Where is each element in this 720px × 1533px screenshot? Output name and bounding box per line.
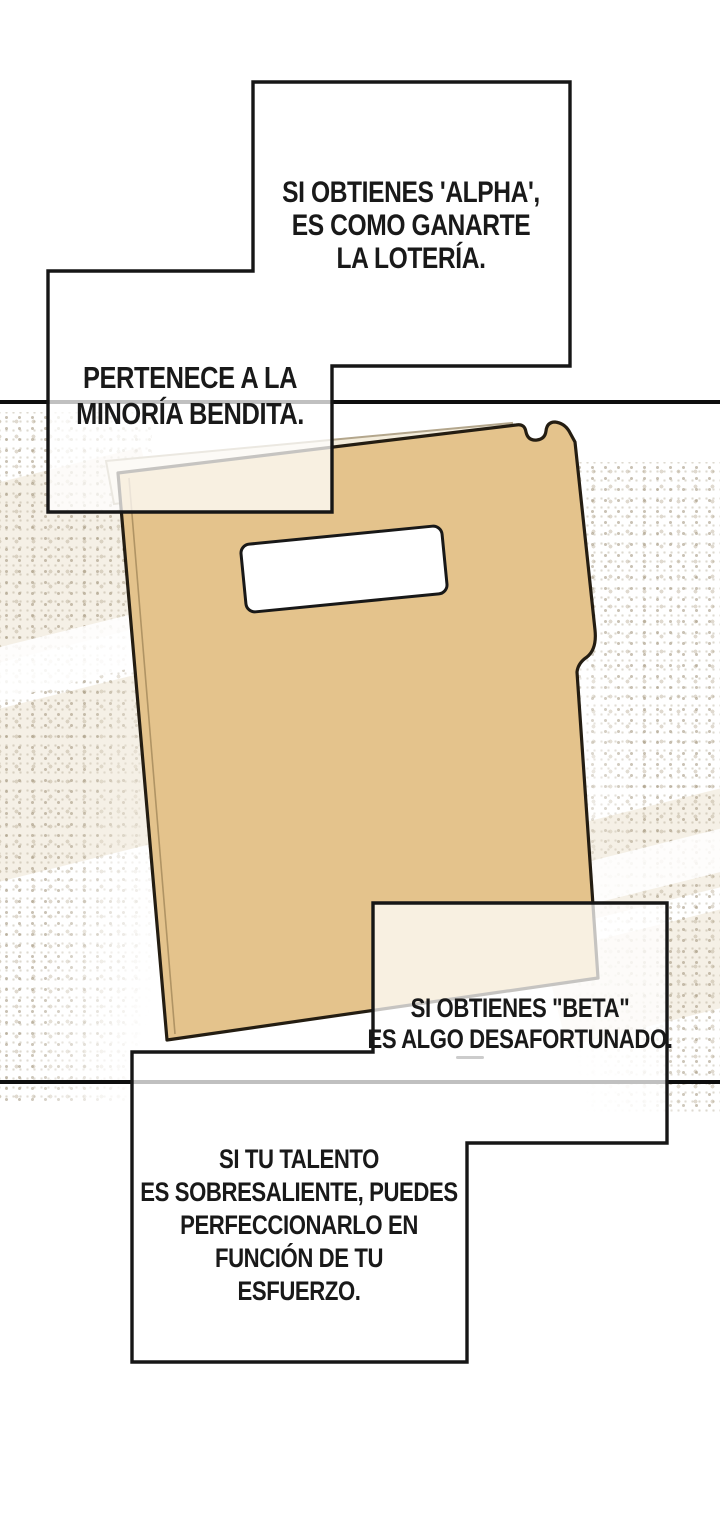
speech-line: PERTENECE A LA <box>26 360 354 396</box>
motion-dash <box>456 1056 484 1059</box>
speech-text-alpha: SI OBTIENES 'ALPHA', ES COMO GANARTE LA … <box>247 176 575 275</box>
speech-line: SI TU TALENTO <box>127 1143 471 1176</box>
speech-line: LA LOTERÍA. <box>247 242 575 275</box>
speech-line: SI OBTIENES "BETA" <box>348 993 692 1024</box>
speech-line: SI OBTIENES 'ALPHA', <box>247 176 575 209</box>
speech-text-minoria: PERTENECE A LA MINORÍA BENDITA. <box>26 360 354 432</box>
speech-bubble-alpha-minoria <box>48 82 570 512</box>
speech-text-talento: SI TU TALENTO ES SOBRESALIENTE, PUEDES P… <box>127 1143 471 1308</box>
speech-line: ESFUERZO. <box>127 1275 471 1308</box>
speech-line: MINORÍA BENDITA. <box>26 396 354 432</box>
speech-text-beta: SI OBTIENES "BETA" ES ALGO DESAFORTUNADO… <box>348 993 692 1055</box>
speech-line: FUNCIÓN DE TU <box>127 1242 471 1275</box>
speech-line: PERFECCIONARLO EN <box>127 1209 471 1242</box>
speech-line: ES ALGO DESAFORTUNADO. <box>348 1024 692 1055</box>
comic-page: SI OBTIENES 'ALPHA', ES COMO GANARTE LA … <box>0 0 720 1533</box>
speech-line: ES COMO GANARTE <box>247 209 575 242</box>
speech-line: ES SOBRESALIENTE, PUEDES <box>127 1176 471 1209</box>
